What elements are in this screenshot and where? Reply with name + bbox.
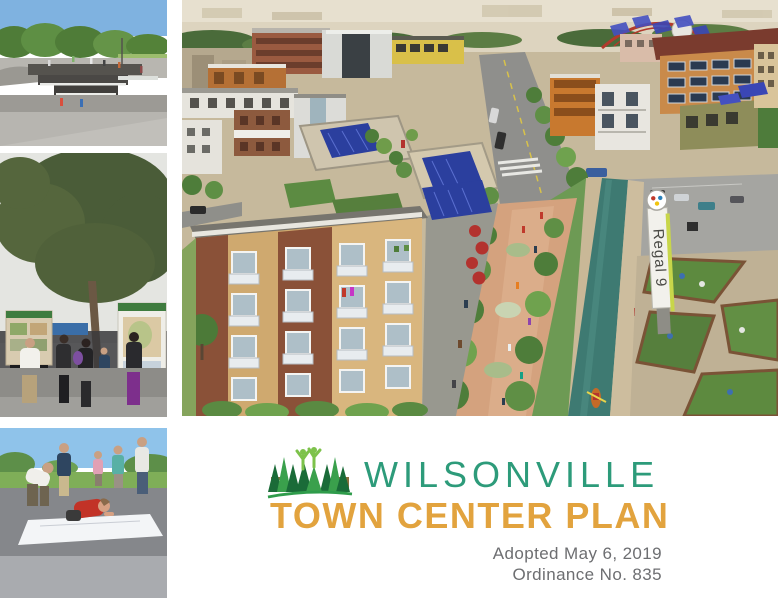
park-water-feature-illustration bbox=[0, 0, 167, 146]
brick-mid-building bbox=[234, 110, 290, 156]
logo-trees bbox=[268, 457, 350, 492]
title-wilsonville: WILSONVILLE bbox=[364, 456, 659, 494]
event-tent bbox=[52, 323, 88, 335]
document-cover-page: Regal 9 bbox=[0, 0, 778, 598]
adoption-info: Adopted May 6, 2019 Ordinance No. 835 bbox=[493, 543, 662, 585]
dumpster bbox=[687, 222, 698, 231]
title-town-center-plan: TOWN CENTER PLAN bbox=[270, 497, 669, 535]
blue-truck bbox=[586, 168, 607, 177]
red-umbrella bbox=[469, 225, 481, 237]
white-balcony-building bbox=[595, 84, 650, 150]
kids-drawing-map-photo bbox=[0, 428, 167, 598]
wet-plaza bbox=[0, 95, 167, 114]
orange-grid-building bbox=[550, 74, 600, 136]
regal-sign-text: Regal 9 bbox=[649, 228, 669, 288]
ordinance-number: Ordinance No. 835 bbox=[493, 564, 662, 585]
teal-car bbox=[698, 202, 715, 210]
red-umbrella bbox=[476, 242, 489, 255]
rendering-illustration: Regal 9 bbox=[182, 0, 778, 416]
parked-car bbox=[190, 206, 206, 214]
terraced-fountain bbox=[0, 64, 158, 96]
community-open-house-photo bbox=[0, 153, 167, 417]
asphalt-light bbox=[0, 556, 167, 598]
red-umbrella bbox=[466, 257, 478, 269]
map-drawing-illustration bbox=[0, 428, 167, 598]
red-umbrella bbox=[473, 272, 486, 285]
right-edge-tan-building bbox=[754, 44, 778, 108]
park-water-feature-photo bbox=[0, 0, 167, 146]
logo-people-figures bbox=[297, 447, 320, 469]
balloon bbox=[73, 351, 83, 365]
white-modern-building bbox=[322, 30, 392, 78]
orange-timber-building bbox=[208, 64, 286, 90]
aerial-town-center-rendering: Regal 9 bbox=[182, 0, 778, 416]
adopted-date: Adopted May 6, 2019 bbox=[493, 543, 662, 564]
balcony-plant bbox=[404, 245, 409, 251]
open-house-illustration bbox=[0, 153, 167, 417]
yellow-building bbox=[392, 36, 464, 64]
balcony-plant bbox=[394, 246, 399, 252]
